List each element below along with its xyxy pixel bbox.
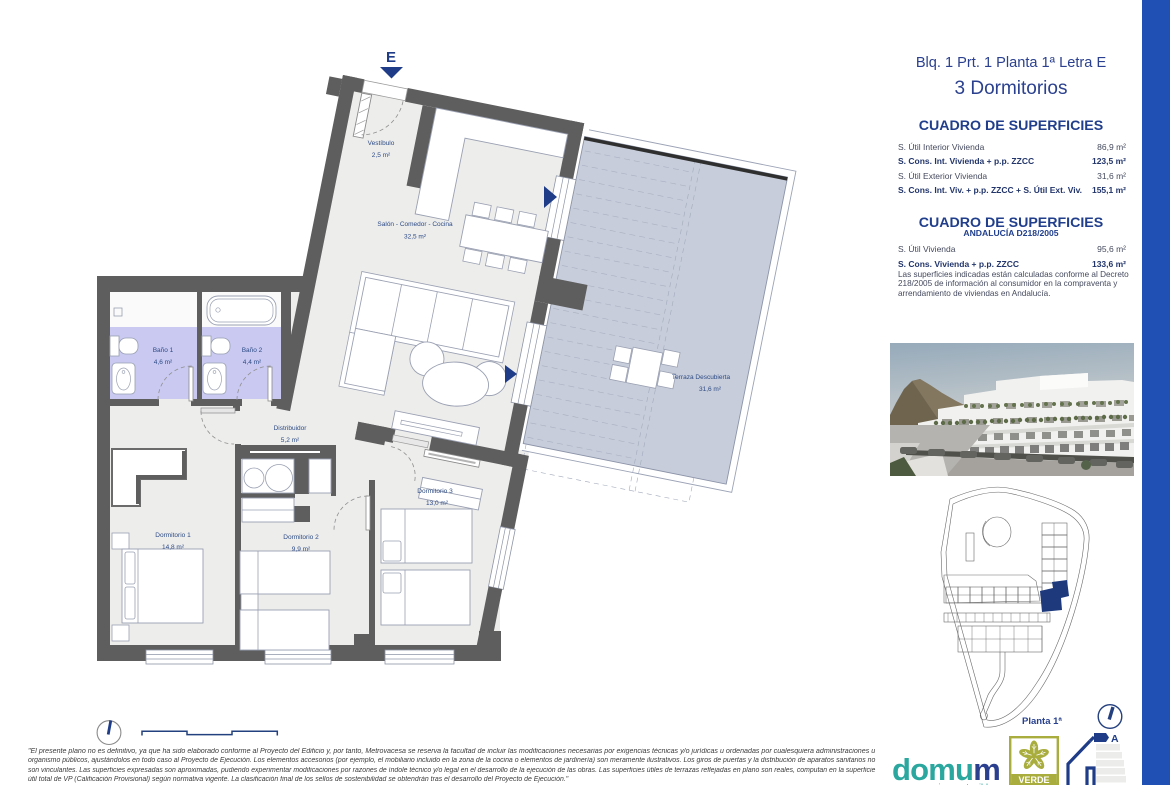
svg-text:13,0 m²: 13,0 m² <box>426 500 449 507</box>
svg-text:Vestíbulo: Vestíbulo <box>368 140 395 147</box>
svg-text:Distribuidor: Distribuidor <box>274 425 308 432</box>
svg-text:Salón - Comedor - Cocina: Salón - Comedor - Cocina <box>377 221 453 228</box>
svg-text:Terraza Descubierta: Terraza Descubierta <box>672 374 731 381</box>
svg-text:Dormitorio 1: Dormitorio 1 <box>155 532 191 539</box>
svg-text:31,6 m²: 31,6 m² <box>699 386 722 393</box>
svg-text:Dormitorio 3: Dormitorio 3 <box>417 488 453 495</box>
svg-text:4,4 m²: 4,4 m² <box>243 359 262 366</box>
svg-text:4,6 m²: 4,6 m² <box>154 359 173 366</box>
svg-text:2,5 m²: 2,5 m² <box>372 152 391 159</box>
svg-text:9,9 m²: 9,9 m² <box>292 546 311 553</box>
svg-text:A: A <box>1111 733 1119 745</box>
svg-text:32,5 m²: 32,5 m² <box>404 234 427 241</box>
svg-text:Baño 2: Baño 2 <box>242 347 263 354</box>
svg-text:14,8 m²: 14,8 m² <box>162 544 185 551</box>
svg-text:Baño 1: Baño 1 <box>153 347 174 354</box>
svg-text:5,2 m²: 5,2 m² <box>281 437 300 444</box>
svg-text:VERDE: VERDE <box>1018 775 1049 785</box>
svg-text:E: E <box>386 49 396 66</box>
svg-text:Dormitorio 2: Dormitorio 2 <box>283 534 319 541</box>
